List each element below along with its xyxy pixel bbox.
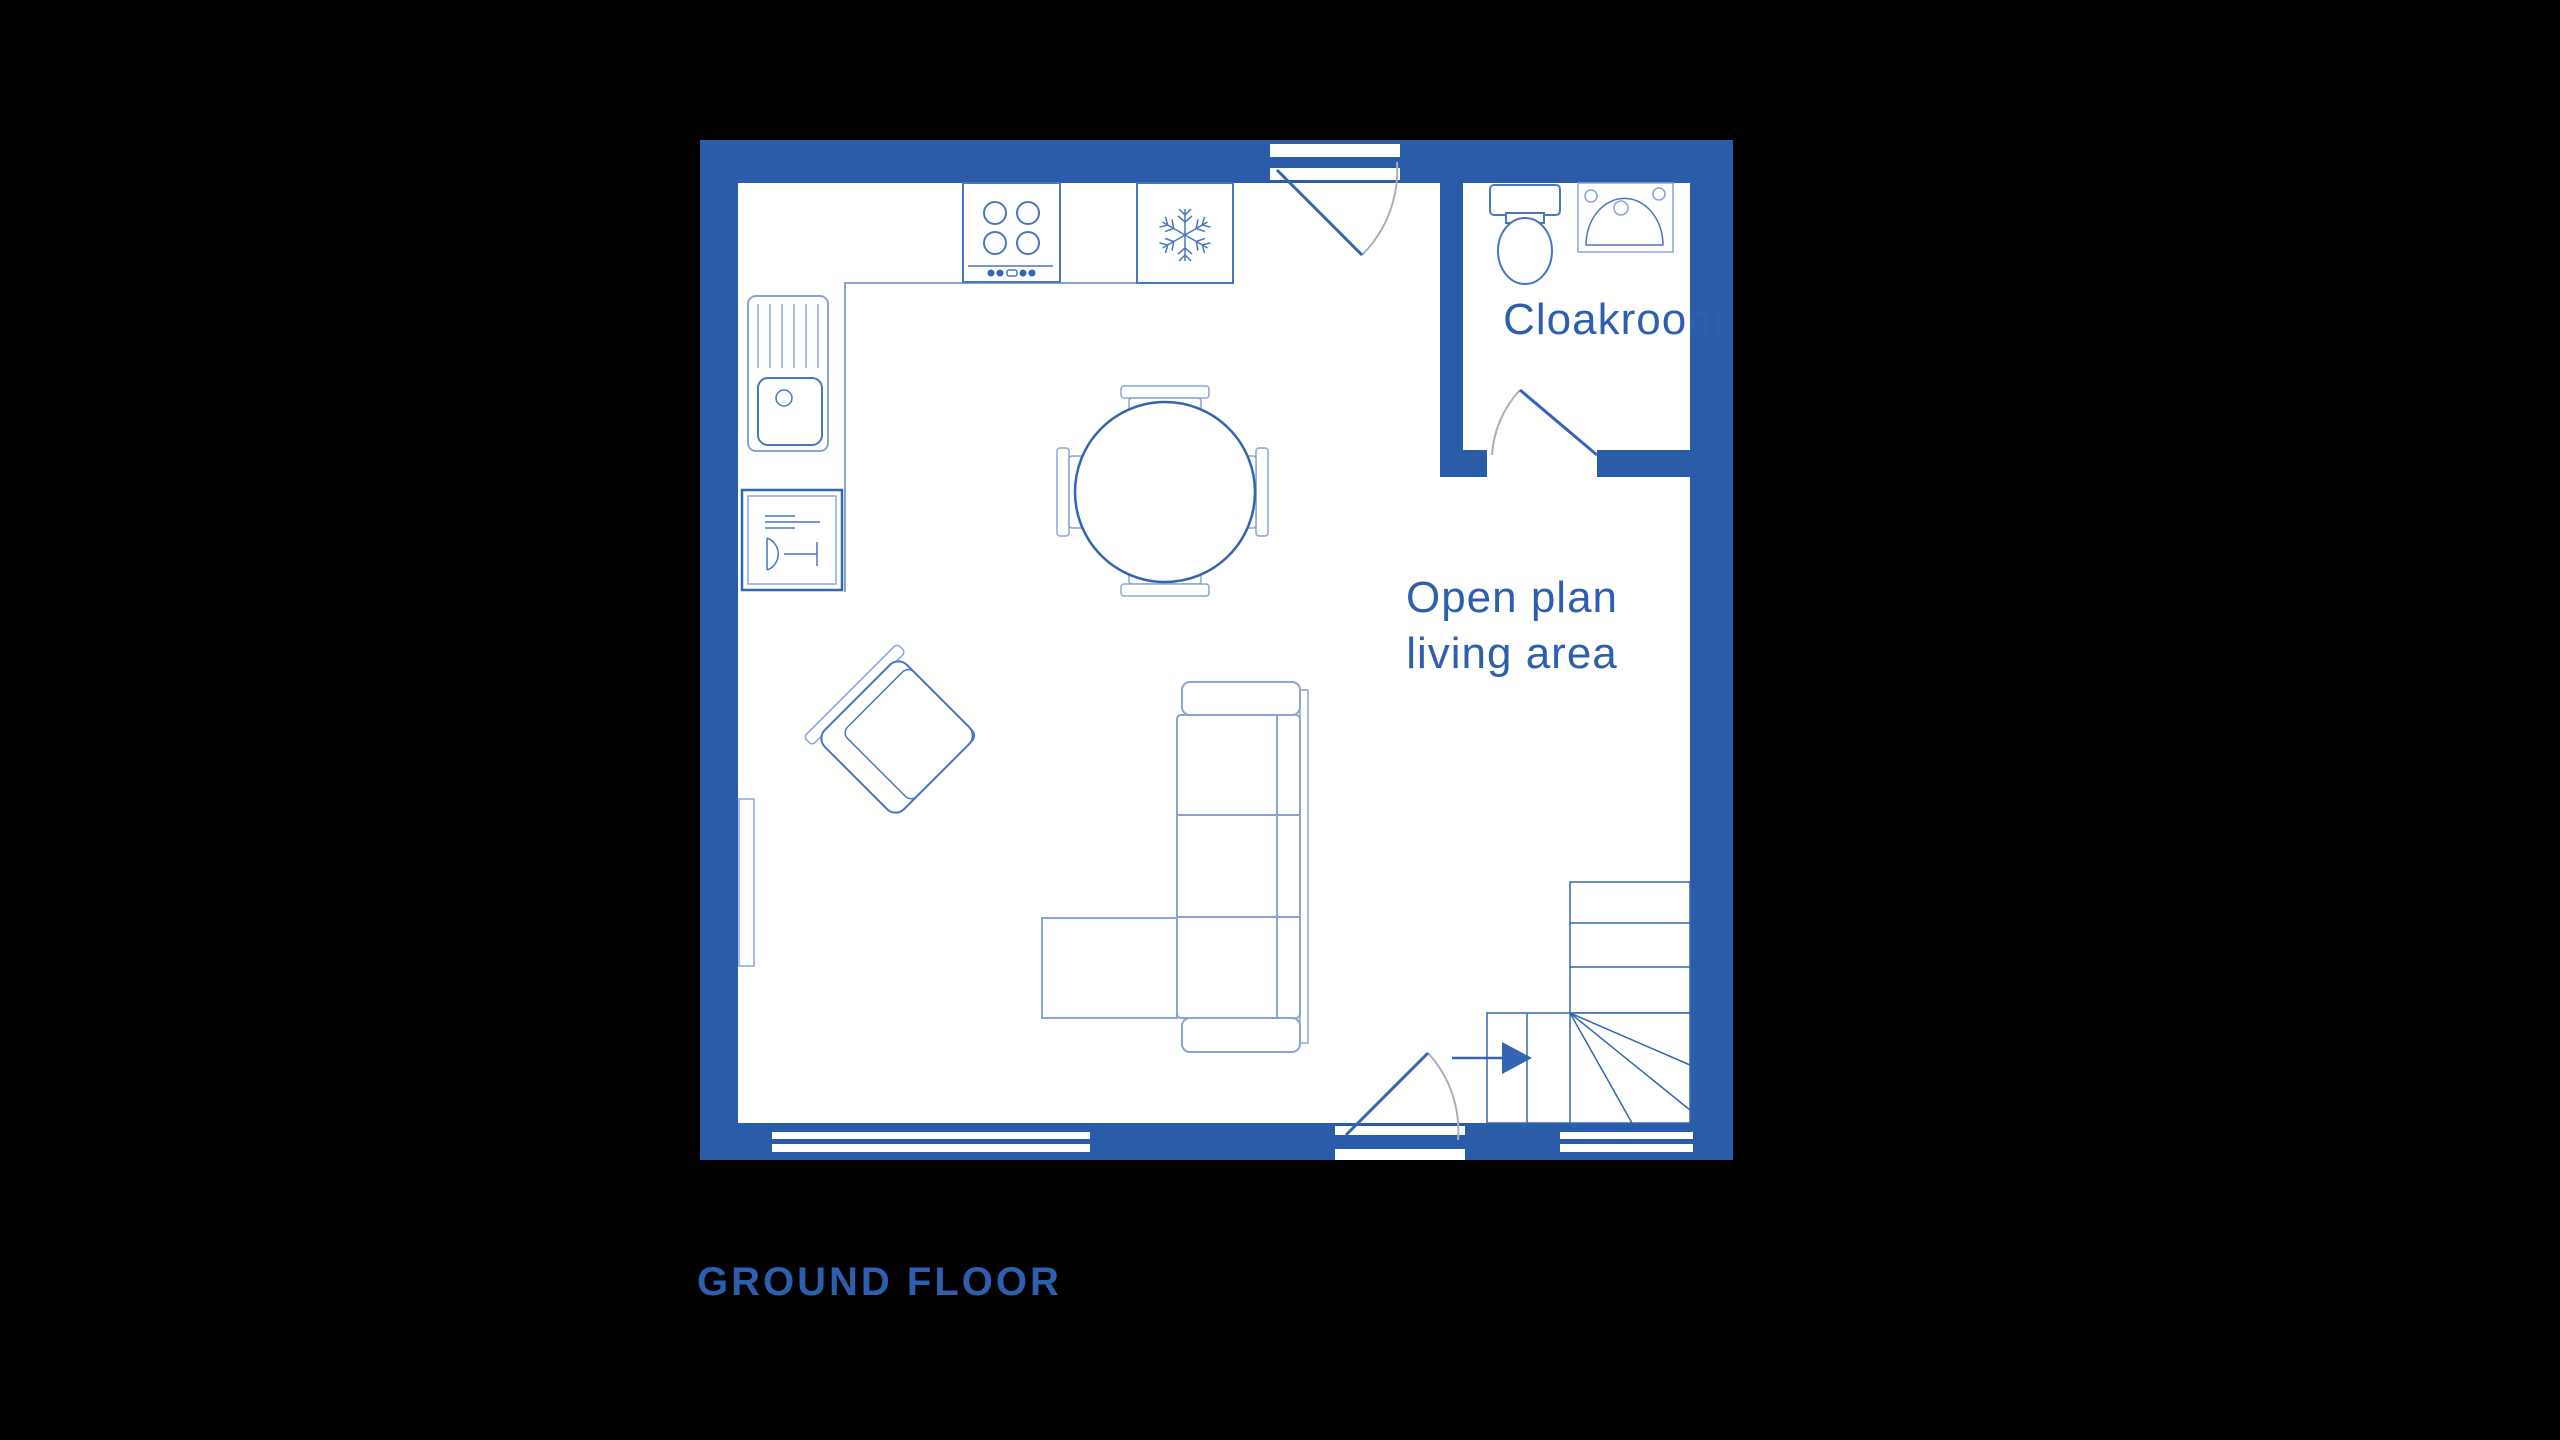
fridge-freezer — [1137, 183, 1233, 283]
open-plan-label-line2: living area — [1406, 629, 1618, 678]
hob-knob — [1029, 270, 1036, 277]
stairs-lower-flight — [1487, 1013, 1690, 1123]
floor-plan: Cloakroom Open plan living area — [700, 140, 1733, 1160]
round-dining-table — [1075, 402, 1255, 582]
sofa-armrest-top — [1182, 682, 1300, 715]
cloakroom-door-opening — [1487, 450, 1597, 477]
cloakroom-wall-left — [1440, 183, 1463, 477]
window-bottom-right — [1560, 1132, 1693, 1152]
back-door-opening — [1270, 144, 1400, 180]
sink-with-drainer — [748, 296, 828, 451]
hob-display — [1007, 270, 1017, 276]
toilet-bowl — [1498, 218, 1552, 284]
sofa-seats-outline — [1177, 715, 1300, 1018]
chair-top-back — [1121, 386, 1209, 398]
sofa-armrest-bottom — [1182, 1018, 1300, 1052]
floor-title: GROUND FLOOR — [697, 1260, 1062, 1305]
cloakroom-wall-bottom-a — [1440, 450, 1487, 477]
hob-knob — [1020, 270, 1027, 277]
hob-knob — [997, 270, 1004, 277]
ottoman — [1042, 918, 1177, 1018]
wall-right — [1690, 140, 1733, 1160]
cloakroom-label: Cloakroom — [1503, 295, 1725, 344]
hob — [963, 183, 1060, 282]
sink-unit-outline — [748, 296, 828, 451]
window-bottom-left — [772, 1132, 1090, 1152]
hob-outline — [963, 183, 1060, 282]
chair-left-back — [1057, 448, 1069, 536]
washbasin — [1578, 183, 1673, 252]
sofa-back-outer — [1300, 690, 1308, 1043]
toilet-cistern — [1490, 185, 1560, 215]
cloakroom-wall-bottom-b — [1597, 450, 1690, 477]
wall-top — [700, 140, 1733, 183]
wall-left — [700, 140, 738, 1160]
page: { "colors": { "background": "#000000", "… — [0, 0, 2560, 1440]
radiator — [739, 799, 754, 966]
stairs-upper-flight — [1570, 882, 1690, 1013]
entrance-door-opening — [1335, 1126, 1465, 1160]
chair-right-back — [1256, 448, 1268, 536]
chair-bottom-back — [1121, 584, 1209, 596]
hob-knob — [988, 270, 995, 277]
open-plan-label-line1: Open plan — [1406, 573, 1618, 622]
